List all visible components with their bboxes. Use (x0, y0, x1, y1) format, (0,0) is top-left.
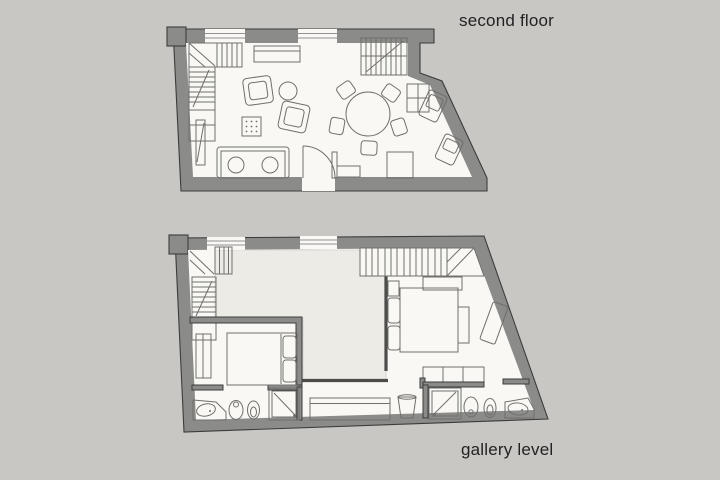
bathroom-wall (423, 385, 428, 418)
bedroom-wall (192, 385, 223, 390)
second-floor-plan (167, 27, 487, 191)
window (298, 29, 337, 43)
gallery-level-plan (169, 235, 548, 432)
corner-pier (169, 235, 188, 254)
floor-plan-image: second floor gallery level (0, 0, 720, 480)
bathroom-wall (503, 379, 529, 384)
staircase (360, 248, 484, 276)
second-floor-label: second floor (459, 11, 554, 31)
gallery-level-label: gallery level (461, 440, 553, 460)
window (205, 29, 245, 43)
window (300, 236, 337, 249)
corner-pier (167, 27, 186, 46)
bathroom-wall (423, 382, 484, 387)
window (207, 237, 245, 250)
floor-plans-drawing (0, 0, 720, 480)
